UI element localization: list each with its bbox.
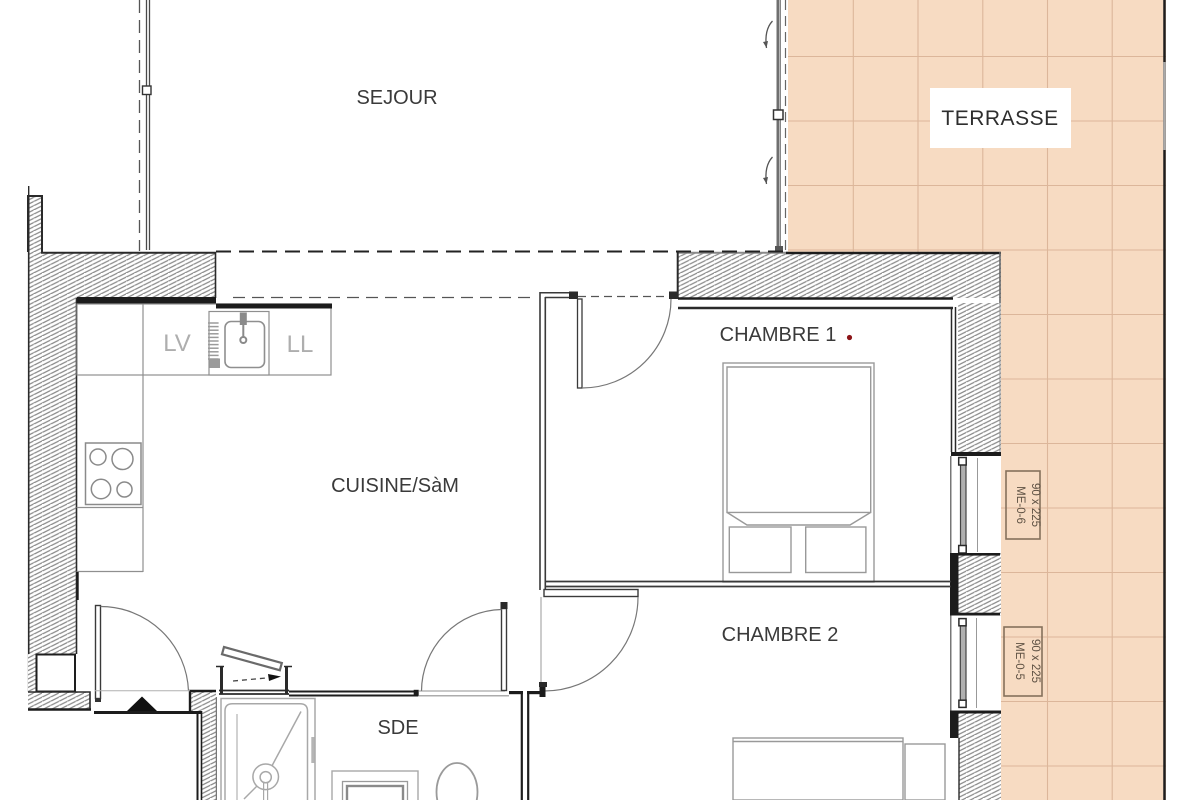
svg-text:ME-0-6: ME-0-6 (1014, 486, 1026, 524)
svg-text:CHAMBRE 1: CHAMBRE 1 (720, 324, 837, 346)
svg-text:90 x 225: 90 x 225 (1029, 483, 1041, 527)
svg-text:LV: LV (163, 330, 191, 357)
svg-text:CUISINE/SàM: CUISINE/SàM (331, 475, 459, 497)
svg-text:SEJOUR: SEJOUR (356, 87, 437, 109)
svg-text:TERRASSE: TERRASSE (941, 107, 1058, 130)
svg-text:CHAMBRE 2: CHAMBRE 2 (722, 624, 839, 646)
svg-text:90 x 225: 90 x 225 (1029, 639, 1041, 683)
svg-text:SDE: SDE (377, 717, 418, 739)
svg-text:LL: LL (287, 331, 314, 358)
svg-text:ME-0-5: ME-0-5 (1013, 642, 1025, 680)
